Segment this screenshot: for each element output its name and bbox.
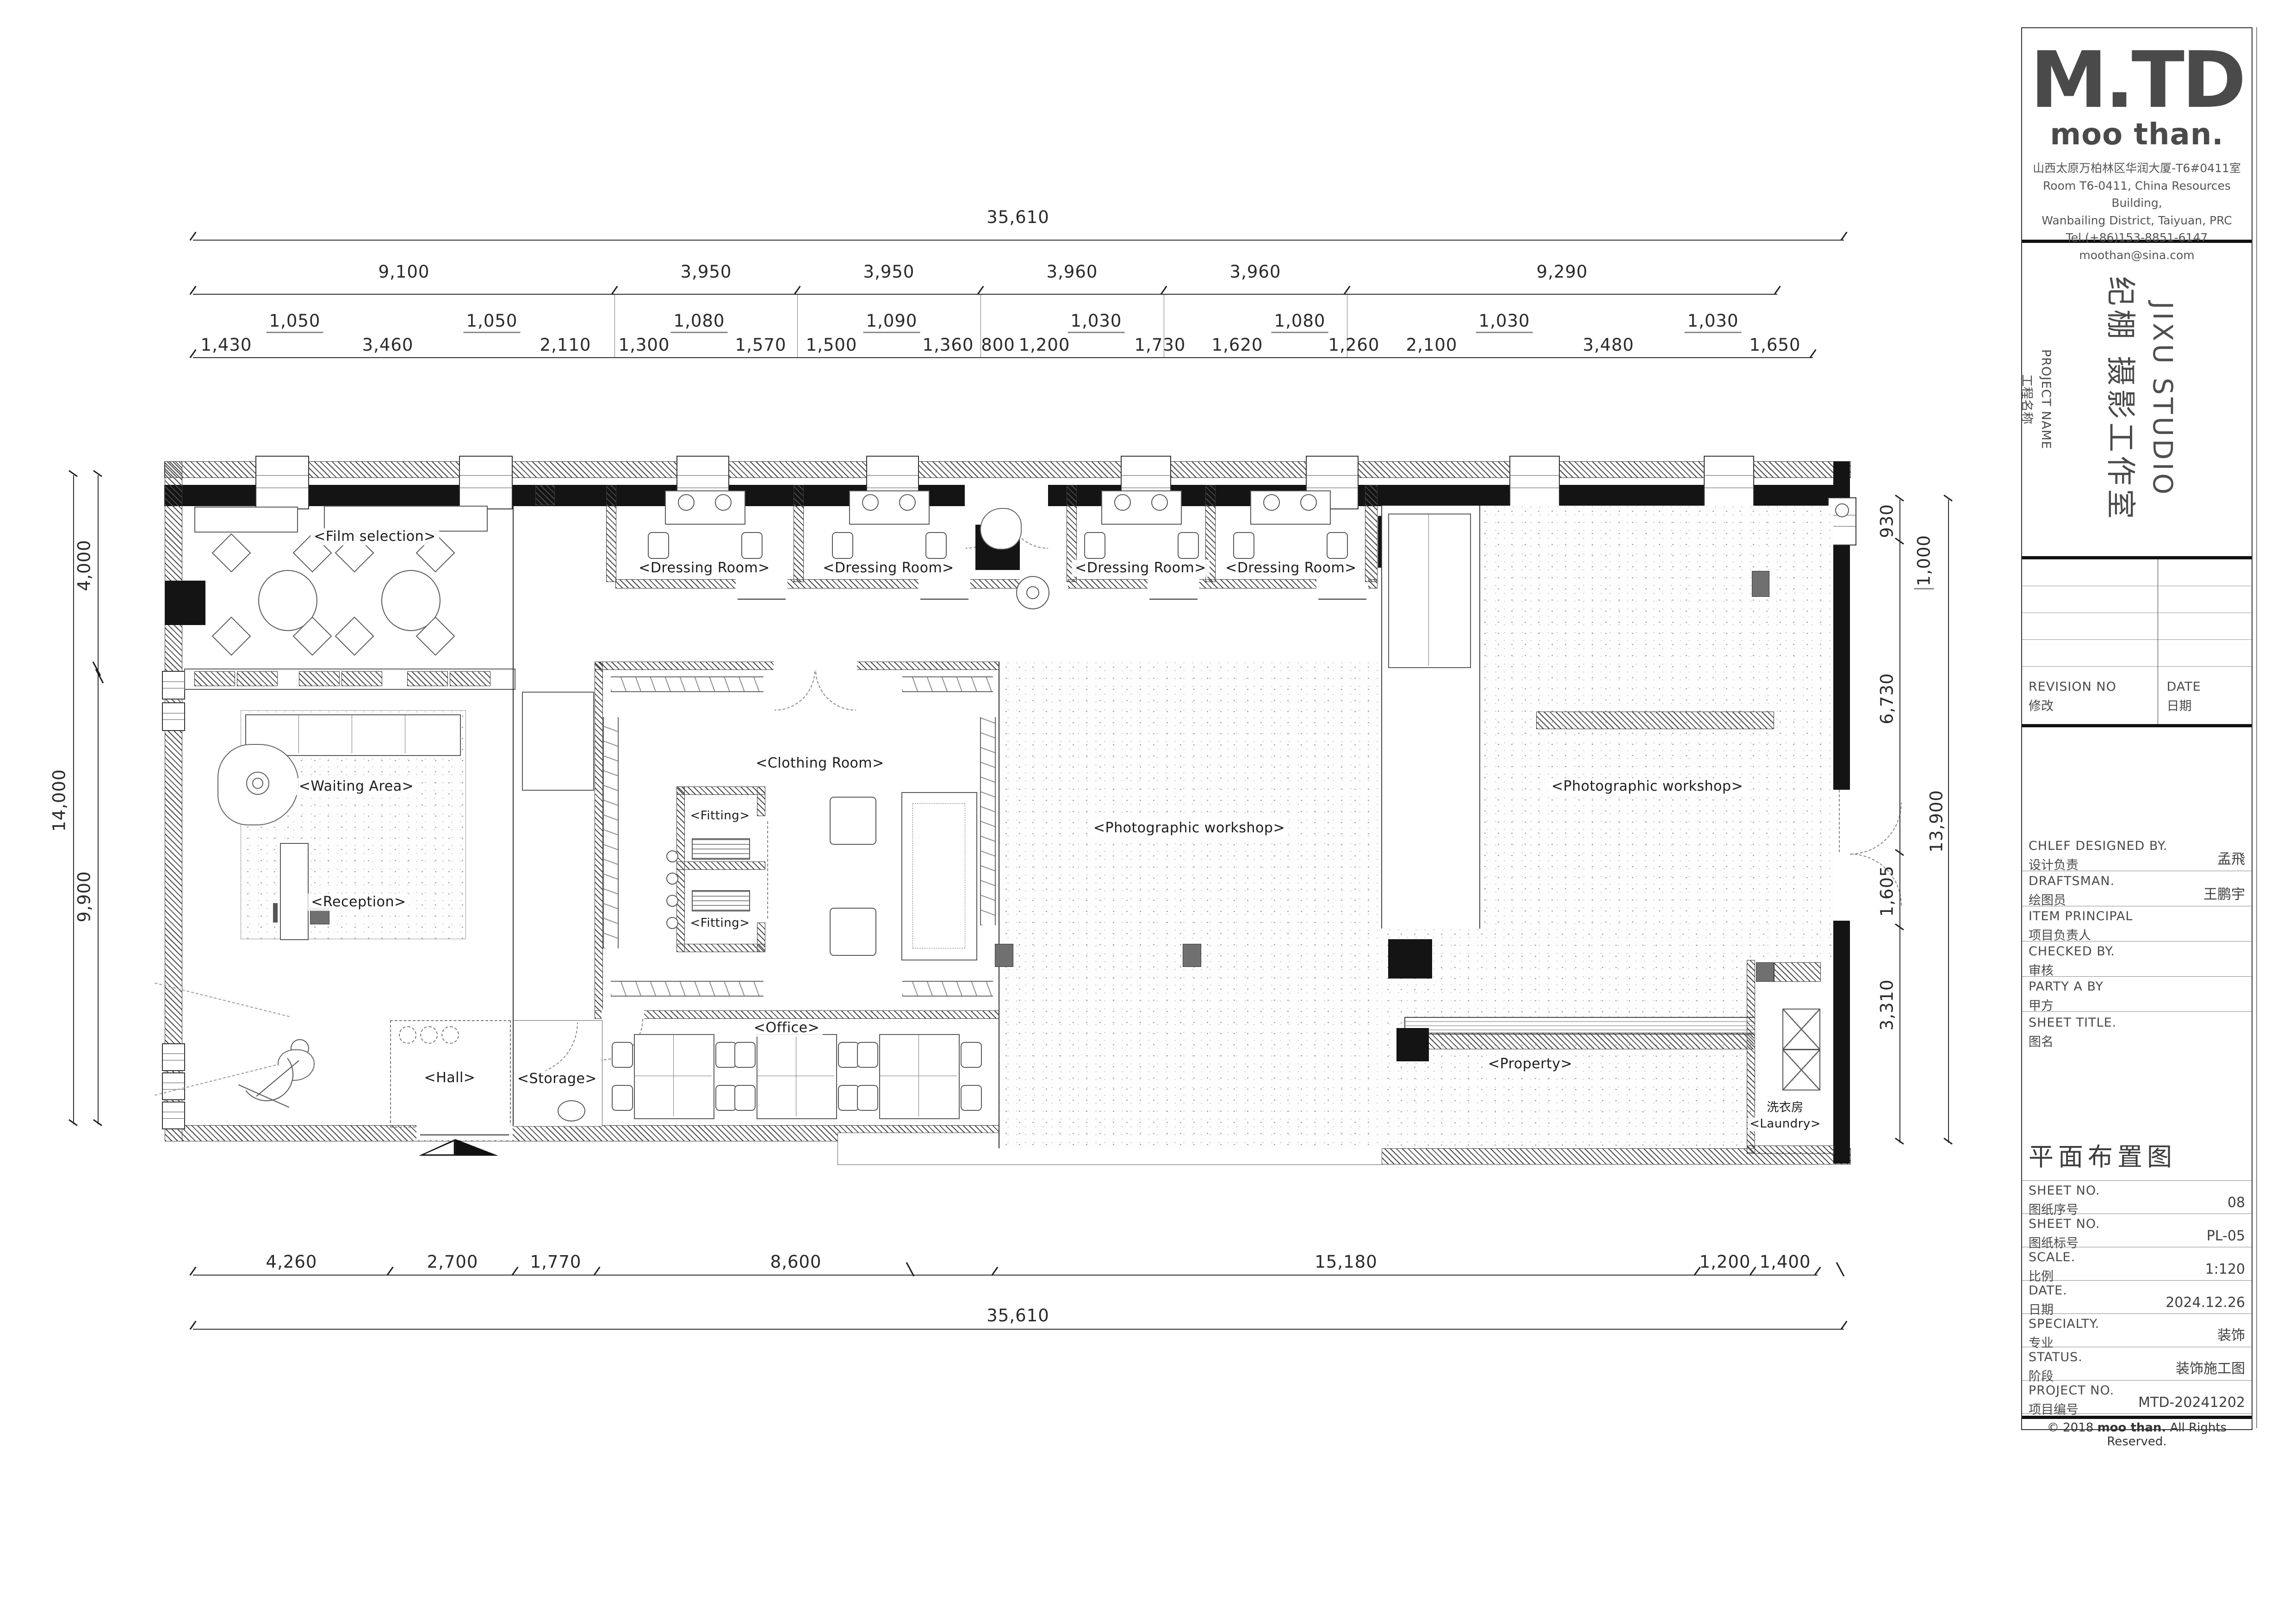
fitting-wall [676,944,765,952]
room-label-waiting: <Waiting Area> [296,778,417,795]
dim-text: 930 [1877,504,1897,538]
bench-cushion [194,671,235,686]
row-label-en: CHLEF DESIGNED BY. [2029,839,2245,853]
title-block-row: CHECKED BY. 审核 [2022,942,2252,977]
office-chair [715,1042,737,1068]
room-label-reception: <Reception> [308,894,409,911]
room-label-workshop-right: <Photographic workshop> [1548,778,1746,795]
dim-text: 1,260 [1328,335,1380,355]
dim-leader: 1,050 [267,311,323,333]
title-block-row: SHEET NO. 图纸标号 PL-05 [2022,1214,2252,1247]
dim-text: 1,300 [619,335,670,355]
chair [1178,532,1199,559]
sofa-divider [352,715,352,753]
project-label-en: PROJECT NAME [2039,349,2053,449]
desk-cluster [634,1034,714,1119]
laundry-counter [1756,962,1775,982]
dim-leader: 1,080 [1272,311,1328,333]
project-title-cn: 纪棚 摄影工作室 [2102,276,2144,522]
dressing-divider [1365,485,1378,582]
project-name-side-label: PROJECT NAME 工程名称 [2019,349,2053,449]
chair [925,532,947,559]
plant [980,508,1022,550]
row-label-cn: 审核 [2029,960,2245,979]
makeup-mirror-seat [899,494,916,511]
room-label-office: <Office> [751,1020,823,1037]
dim-text: 35,610 [987,1306,1049,1326]
dim-line [193,1275,1818,1276]
row-value: 08 [2228,1195,2245,1211]
dim-leader: 1,080 [671,311,728,333]
chair [741,532,763,559]
room-label-workshop-central: <Photographic workshop> [1090,820,1288,837]
copyright-brand: moo than. [2097,1421,2166,1435]
dim-text: 8,600 [770,1252,822,1272]
dim-line [1948,500,1949,1143]
revision-header-en: REVISION NO [2029,680,2116,694]
makeup-mirror-seat [1151,494,1168,511]
plant-pot-inner [252,778,263,789]
dressing-divider [794,485,804,582]
address-line: 山西太原万柏林区华润大厦-T6#0411室 [2022,160,2252,177]
dim-break [95,669,104,683]
dim-line [193,294,1777,295]
clothes-rack [902,676,993,692]
door-gap [774,661,857,670]
cabinet [194,507,298,533]
door-leaf [738,599,786,600]
dim-text: 1,770 [530,1252,582,1272]
copyright-row: © 2018 moo than. All Rights Reserved. [2022,1419,2252,1437]
dim-text: 14,000 [50,769,69,831]
wall-left [165,461,182,1141]
laundry-counter-hatch [1774,962,1821,982]
dim-text: 4,000 [74,540,94,591]
title-block: M.TD moo than. 山西太原万柏林区华润大厦-T6#0411室 Roo… [2021,27,2253,1430]
revision-empty-row [2022,586,2252,613]
moothan-logo: moo than. [2022,120,2252,149]
window-left [162,671,185,700]
dim-text: 1,500 [806,335,857,355]
copyright-prefix: © 2018 [2047,1421,2093,1435]
dim-text: 3,960 [1047,262,1098,282]
desk-cluster [757,1034,837,1119]
partition-glass [513,506,514,1126]
bench-cushion [450,671,490,686]
washing-machine [1782,1009,1820,1050]
chair [1233,532,1254,559]
desk-divider [635,1076,712,1076]
dim-text: 1,605 [1877,866,1897,917]
dim-text: 6,730 [1877,673,1897,725]
row-label-en: ITEM PRINCIPAL [2029,909,2245,923]
room-label-storage: <Storage> [514,1071,600,1088]
door-leaf [1149,599,1198,600]
bench-cushion [407,671,448,686]
clothes-rack [611,676,763,692]
sheet-title-cell: SHEET TITLE. 图名 平面布置图 [2022,1012,2252,1181]
reception-desk [280,843,309,940]
room-label-dressing-2: <Dressing Room> [819,560,957,577]
dim-text: 3,950 [863,262,915,282]
row-value: 2024.12.26 [2166,1295,2245,1311]
chair [832,532,853,559]
window [459,456,513,509]
fitting-bench [692,838,750,860]
office-chair [838,1042,859,1068]
sheet-title-label-cn: 图名 [2029,1032,2245,1050]
column [1396,1028,1429,1061]
dim-text: 3,950 [681,262,732,282]
door-gap [602,1010,644,1019]
revision-header-cn: 修改 [2029,696,2116,714]
door-swing-arc [1850,803,1902,855]
dim-leader: 1,030 [1068,311,1125,333]
row-label-en: PARTY A BY [2029,979,2245,994]
dim-tick [1814,1267,1821,1276]
office-chair [734,1085,756,1111]
dim-text: 15,180 [1315,1252,1377,1272]
dim-text: 1,400 [1760,1252,1811,1272]
title-block-row: SHEET NO. 图纸序号 08 [2022,1181,2252,1214]
storage-fixture [558,1100,585,1121]
dim-text: 1,360 [923,335,974,355]
makeup-mirror-seat [1114,494,1131,511]
display-table-inner [912,803,965,948]
clothing-wall-bottom [595,1010,1000,1019]
project-title-en: JIXU STUDIO [2147,276,2178,522]
dim-text: 35,610 [987,207,1049,227]
office-chair [612,1085,633,1111]
project-name-cell: PROJECT NAME 工程名称 JIXU STUDIO 纪棚 摄影工作室 [2022,243,2252,556]
dim-tick [1809,349,1816,359]
drawing-sheet: { "plan": { "rooms": { "film_selection":… [0,0,2296,1623]
door-swing-arc [815,670,856,711]
cabinet [324,506,488,532]
fitting-wall [757,923,765,952]
partition [999,662,999,1148]
bench-cushion [341,671,382,686]
chair [648,532,669,559]
room-label-laundry: <Laundry> [1748,1117,1823,1131]
dim-line [193,357,1813,358]
row-value: 装饰施工图 [2176,1357,2245,1377]
sheet-title-value: 平面布置图 [2029,1136,2177,1173]
row-label-en: SPECIALTY. [2029,1317,2245,1331]
hall-circle [441,1026,459,1044]
desk-divider [757,1076,834,1076]
column [1388,939,1432,979]
entrance-opening [416,1125,513,1140]
desk-divider [880,1076,957,1076]
hook [666,850,678,862]
door-gap [918,578,970,588]
title-block-row: PARTY A BY 甲方 [2022,977,2252,1012]
floor-plan: <Film selection> <Dressing Room> <Dressi… [0,0,2022,1623]
project-label-cn: 工程名称 [2019,349,2037,449]
title-block-row: STATUS. 阶段 装饰施工图 [2022,1347,2252,1381]
door-swing-arc [775,670,815,711]
mtd-logo: M.TD [2022,41,2252,119]
chair [1084,532,1105,559]
dim-text: 3,480 [1583,335,1634,355]
row-value: 王鹏宇 [2203,883,2245,903]
revision-empty-row [2022,613,2252,640]
armchair [830,797,876,845]
title-block-row: CHLEF DESIGNED BY. 设计负责 孟飛 [2022,836,2252,871]
wall-top-exterior [164,461,1851,478]
dim-text: 2,700 [427,1252,478,1272]
column-small [995,944,1013,967]
office-chair [612,1042,633,1068]
backdrop-wall [1536,712,1774,729]
dim-text: 13,900 [1927,790,1947,852]
room-label-property: <Property> [1485,1056,1576,1073]
row-label-cn: 设计负责 [2029,855,2245,873]
hook [666,895,678,907]
revision-bottom-rule [2022,724,2252,727]
door-leaf [1839,790,1840,852]
door-leaf [920,599,968,600]
revision-table: REVISION NO 修改 DATE 日期 [2022,556,2252,727]
dim-leader: 1,030 [1476,311,1533,333]
fitting-wall [676,861,765,870]
info-bottom-rule [2022,1416,2252,1419]
room-label-film-selection: <Film selection> [310,528,439,545]
door-gap [736,578,788,588]
row-value: MTD-20241202 [2138,1394,2245,1411]
wardrobe-divider [1428,514,1429,665]
dim-text: 1,200 [1700,1252,1751,1272]
room-label-dressing-1: <Dressing Room> [635,560,773,577]
window [1704,456,1754,509]
clothes-rack [980,717,996,925]
dim-text: 1,620 [1212,335,1263,355]
window-left [162,1102,185,1129]
chair [212,617,251,656]
dim-ext [797,295,798,357]
fitting-wall [676,787,765,795]
dim-text: 800 [981,335,1015,355]
makeup-desk [849,490,930,525]
hook [666,873,678,885]
dim-text: 2,110 [540,335,591,355]
fitting-bench [692,890,750,911]
info-rows: SHEET NO. 图纸序号 08 SHEET NO. 图纸标号 PL-05 S… [2022,1181,2252,1414]
row-label-cn: 甲方 [2029,996,2245,1014]
entrance-arrow [419,1139,498,1156]
door-gap [1148,578,1199,588]
window-left [162,1043,185,1071]
date-header-cn: 日期 [2166,696,2201,714]
entrance-threshold [420,1134,509,1135]
row-value: PL-05 [2207,1228,2245,1244]
office-chair [715,1085,737,1111]
reception-monitor [273,903,278,923]
window [255,456,309,509]
room-label-hall: <Hall> [421,1070,479,1087]
room-label-clothing: <Clothing Room> [752,755,887,772]
dim-text: 3,460 [362,335,414,355]
bench-cushion [237,671,278,686]
wall-symbol [1835,503,1849,517]
row-label-en: SHEET NO. [2029,1183,2245,1198]
door-leaf [1318,599,1366,600]
hook [666,917,678,929]
dim-text: 1,650 [1750,335,1801,355]
makeup-mirror-seat [1300,494,1317,511]
makeup-desk [1250,490,1331,525]
fitting-wall [757,787,765,816]
chair [335,617,374,656]
window [1509,456,1560,509]
row-value: 1:120 [2205,1261,2245,1277]
dim-text: 9,900 [74,871,94,923]
chair [212,533,251,573]
address-line: Wanbailing District, Taiyuan, PRC [2022,212,2252,229]
dim-line [98,475,99,1124]
makeup-mirror-seat [1263,494,1280,511]
fitting-wall [676,787,685,952]
title-block-row: SPECIALTY. 专业 装饰 [2022,1314,2252,1347]
wardrobe [1388,514,1471,668]
corridor-cabinet [522,692,594,791]
revision-col-header: REVISION NO 修改 [2029,680,2116,714]
clothes-rack [611,981,763,997]
dim-break [93,662,101,676]
wall-right-lower [1833,1002,1850,1164]
logo-cell: M.TD moo than. 山西太原万柏林区华润大厦-T6#0411室 Roo… [2022,28,2252,243]
clothing-wall-left [595,662,603,1019]
workshop-floor-central [999,662,1381,1148]
office-chair [857,1085,878,1111]
door-gap [1316,578,1368,588]
date-col-header: DATE 日期 [2166,680,2201,714]
dim-leader: 1,050 [464,311,521,333]
dim-text: 1,730 [1135,335,1186,355]
title-block-row: DRAFTSMAN. 绘图员 王鹏宇 [2022,871,2252,906]
makeup-mirror-seat [862,494,879,511]
corridor-mirror-inner [1026,586,1039,599]
dim-leader: 1,030 [1685,311,1742,333]
row-value: 装饰 [2217,1324,2245,1344]
clothes-rack [902,981,993,997]
title-block-row: DATE. 日期 2024.12.26 [2022,1281,2252,1314]
hall-circle [399,1026,416,1044]
dim-text: 4,260 [266,1252,317,1272]
fitting-curtain [767,821,768,918]
dim-text: 2,100 [1406,335,1458,355]
dim-text: 3,310 [1877,979,1897,1031]
dressing-sill [615,579,1378,588]
room-label-dressing-3: <Dressing Room> [1072,560,1210,577]
window-left [162,1072,185,1100]
column-hatched [535,485,555,505]
dim-break [1836,1262,1845,1276]
dim-ext [614,295,615,357]
address-line: Room T6-0411, China Resources Building, [2022,177,2252,212]
bench-cushion [299,671,340,686]
dim-tick [1840,232,1847,241]
row-label-cn: 项目负责人 [2029,925,2245,943]
office-chair [961,1042,982,1068]
project-title: JIXU STUDIO 纪棚 摄影工作室 [2102,276,2178,522]
office-chair [857,1042,878,1068]
revision-empty-row [2022,640,2252,667]
column-small [1183,944,1201,967]
revision-empty-row [2022,559,2252,586]
makeup-desk [665,490,745,525]
door-opening-top [965,481,1048,508]
sheet-title-label-en: SHEET TITLE. [2029,1016,2245,1030]
armchair [830,908,876,956]
column [165,581,205,625]
makeup-mirror-seat [715,494,732,511]
makeup-desk [1101,490,1182,525]
dim-line [193,1329,1844,1330]
dim-text: 1,570 [735,335,787,355]
office-chair [961,1085,982,1111]
dim-text: 1,430 [201,335,252,355]
dim-text: 3,960 [1230,262,1281,282]
dim-tick [1774,286,1781,295]
title-block-outer-line [2256,27,2257,1428]
row-label-en: CHECKED BY. [2029,944,2245,959]
personnel-rows: CHLEF DESIGNED BY. 设计负责 孟飛 DRAFTSMAN. 绘图… [2022,836,2252,1012]
title-block-row: ITEM PRINCIPAL 项目负责人 [2022,906,2252,942]
sofa-divider [405,715,405,753]
dressing-divider [606,485,616,582]
hall-circle [420,1026,438,1044]
column-small [1752,571,1769,597]
title-block-row: SCALE. 比例 1:120 [2022,1247,2252,1281]
dim-line [1899,500,1900,1143]
title-block-row: PROJECT NO. 项目编号 MTD-20241202 [2022,1381,2252,1414]
chair [1327,532,1348,559]
dim-text: 9,290 [1537,262,1588,282]
sofa-divider [298,715,299,753]
revision-header-row: REVISION NO 修改 DATE 日期 [2022,667,2252,727]
dim-tick [1840,1321,1847,1330]
row-value: 孟飛 [2217,848,2245,868]
dim-line [193,240,1844,241]
dim-text: 9,100 [379,262,430,282]
room-label-laundry-cn: 洗衣房 [1765,1101,1806,1115]
dim-text: 1,200 [1019,335,1070,355]
clothes-rack [603,717,619,948]
dim-leader: 1,090 [863,311,920,333]
office-chair [734,1042,756,1068]
office-chair [838,1085,859,1111]
desk-cluster [879,1034,960,1119]
window-left [162,702,185,731]
laundry-wall-bottom [1747,1146,1834,1154]
room-label-fitting-2: <Fitting> [689,917,752,930]
washing-machine [1782,1049,1820,1090]
makeup-mirror-seat [678,494,695,511]
room-label-fitting-1: <Fitting> [689,809,752,823]
dim-leader: 1,000 [1914,535,1934,589]
date-header-en: DATE [2166,680,2201,694]
room-label-dressing-4: <Dressing Room> [1222,560,1360,577]
